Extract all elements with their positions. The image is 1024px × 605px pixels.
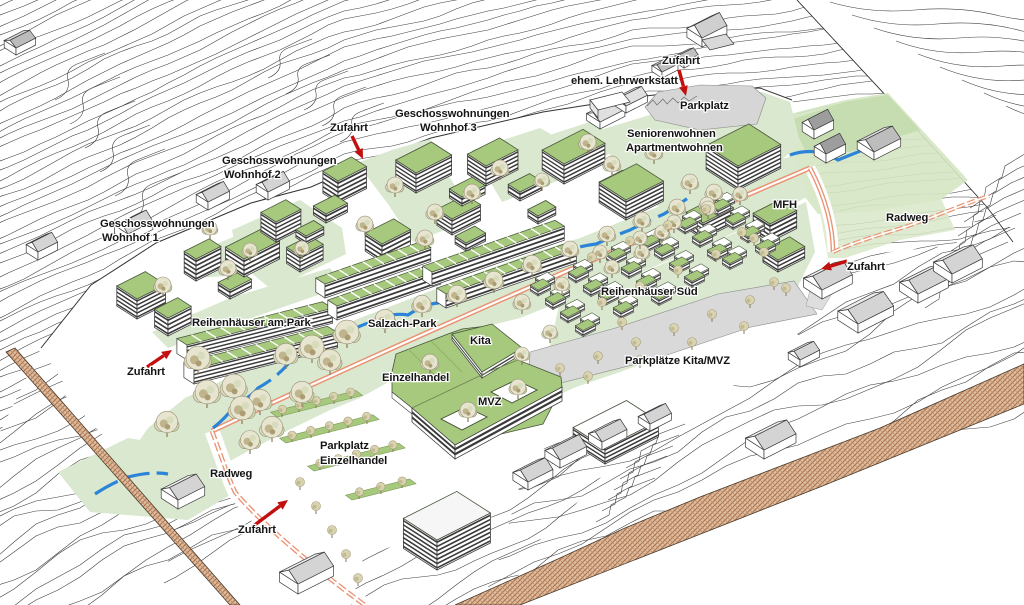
svg-text:Geschosswohnungen: Geschosswohnungen [100, 218, 215, 230]
svg-text:Zufahrt: Zufahrt [127, 366, 165, 378]
svg-text:Reihenhäuser Süd: Reihenhäuser Süd [601, 286, 698, 298]
svg-text:MFH: MFH [773, 199, 797, 211]
svg-text:Salzach-Park: Salzach-Park [368, 318, 437, 330]
svg-text:Parkplatz: Parkplatz [680, 100, 729, 112]
svg-text:Parkplatz: Parkplatz [320, 440, 369, 452]
svg-text:Geschosswohnungen: Geschosswohnungen [395, 108, 510, 120]
svg-text:Radweg: Radweg [886, 212, 929, 224]
svg-text:Seniorenwohnen: Seniorenwohnen [627, 128, 716, 140]
svg-text:Kita: Kita [470, 335, 492, 347]
svg-text:MVZ: MVZ [478, 396, 502, 408]
svg-text:Wohnhof 3: Wohnhof 3 [420, 122, 477, 134]
svg-text:Zufahrt: Zufahrt [330, 122, 368, 134]
svg-text:Zufahrt: Zufahrt [238, 524, 276, 536]
svg-text:ehem. Lehrwerkstatt: ehem. Lehrwerkstatt [571, 75, 678, 87]
svg-text:Reihenhäuser am Park: Reihenhäuser am Park [192, 317, 312, 329]
svg-text:Wohnhof 2: Wohnhof 2 [224, 169, 281, 181]
svg-text:Parkplätze Kita/MVZ: Parkplätze Kita/MVZ [625, 355, 730, 367]
svg-text:Zufahrt: Zufahrt [847, 261, 885, 273]
svg-text:Wohnhof 1: Wohnhof 1 [102, 232, 159, 244]
svg-text:Apartmentwohnen: Apartmentwohnen [626, 142, 723, 154]
svg-text:Einzelhandel: Einzelhandel [382, 372, 449, 384]
svg-text:Einzelhandel: Einzelhandel [320, 455, 387, 467]
svg-text:Geschosswohnungen: Geschosswohnungen [222, 155, 337, 167]
svg-text:Zufahrt: Zufahrt [662, 55, 700, 67]
svg-text:Radweg: Radweg [210, 468, 253, 480]
